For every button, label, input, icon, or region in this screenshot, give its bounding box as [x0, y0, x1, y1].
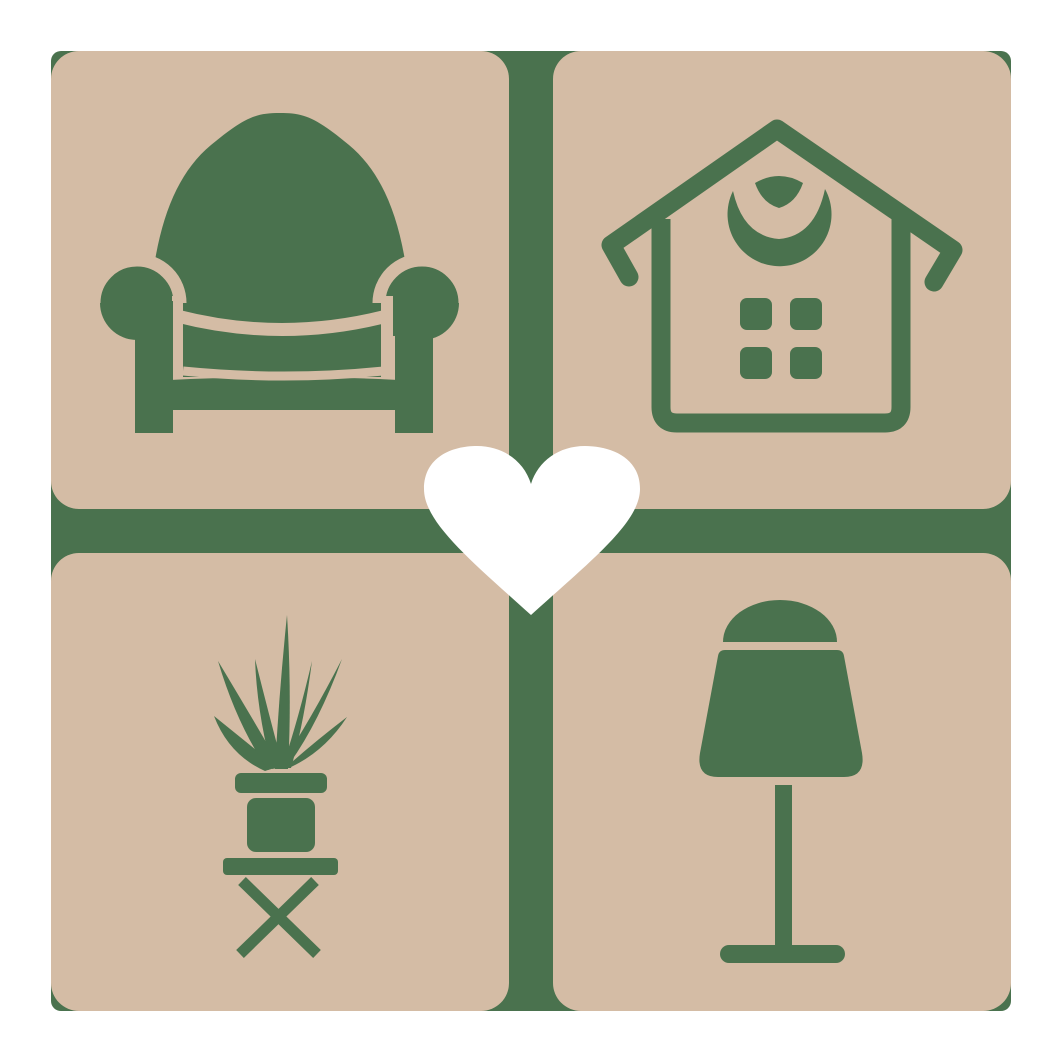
logo-canvas [0, 0, 1063, 1063]
logo-graphic [0, 0, 1063, 1063]
